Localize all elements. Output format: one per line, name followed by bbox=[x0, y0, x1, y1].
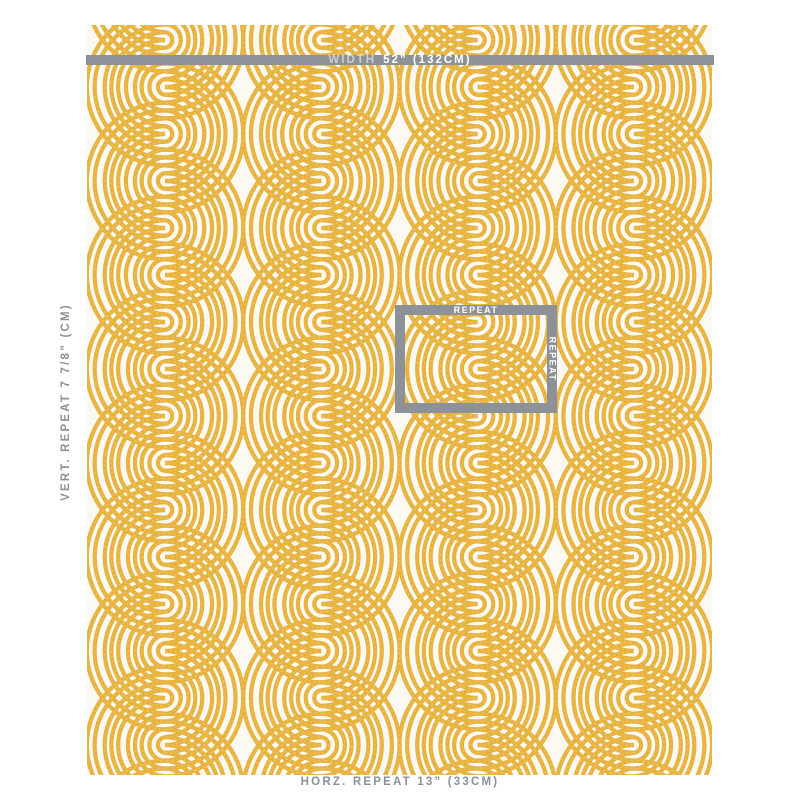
repeat-box-right-border: REPEAT bbox=[547, 305, 557, 413]
horizontal-repeat-label: HORZ. REPEAT 13” (33CM) bbox=[0, 776, 800, 788]
repeat-box: REPEAT REPEAT bbox=[395, 305, 557, 413]
repeat-box-top-border: REPEAT bbox=[395, 305, 557, 315]
vertical-repeat-label: VERT. REPEAT 7 7/8” (CM) bbox=[60, 303, 72, 501]
repeat-label-right: REPEAT bbox=[547, 337, 557, 382]
repeat-box-bottom-border bbox=[395, 403, 557, 413]
width-value: 52” (132CM) bbox=[383, 55, 471, 65]
width-measure-bar: WIDTH 52” (132CM) bbox=[86, 55, 714, 65]
width-label: WIDTH bbox=[328, 55, 376, 65]
repeat-label-top: REPEAT bbox=[454, 305, 499, 315]
product-image: WIDTH 52” (132CM) REPEAT REPEAT VERT. RE… bbox=[0, 0, 800, 800]
repeat-box-left-border bbox=[395, 305, 405, 413]
